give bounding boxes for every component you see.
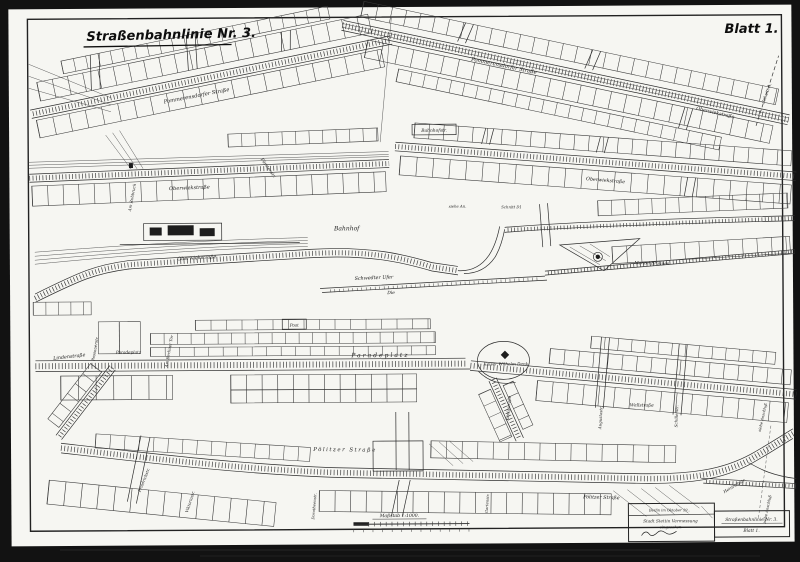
title-block-office-2: eingesehen	[660, 524, 683, 529]
square-label: Paradeplatz	[350, 352, 409, 359]
scale-label: Maßstab 1:1000.	[379, 513, 420, 519]
square-label: Paradeplatz	[115, 350, 142, 355]
street-label: Bahnhofstr.	[420, 129, 447, 134]
title-block-ref-sheet: Blatt 1.	[742, 529, 759, 534]
scanned-sheet: Pommerensdorfer Straße Pommerensdorfer S…	[8, 0, 800, 546]
map-canvas: Pommerensdorfer Straße Pommerensdorfer S…	[0, 0, 800, 562]
street-label: Wallstraße	[630, 403, 654, 408]
photo-texture-line	[200, 555, 760, 557]
paper	[8, 5, 794, 547]
title-block-ref-title: Straßenbahnlinie Nr. 3.	[725, 518, 777, 523]
monument-label: Manzel Brunnen	[633, 260, 670, 266]
section-label: Schnitt D1	[501, 204, 522, 209]
street-label: Pölitzer Straße	[312, 447, 377, 454]
note-label: siehe An.	[449, 204, 467, 209]
title-block-date: Berlin im Oktober 19..	[648, 508, 690, 512]
station-label: Bahnhof	[333, 225, 361, 232]
street-label: Pölitzer Straße	[582, 494, 620, 501]
photo-texture-line	[60, 549, 660, 551]
title-block-office: Stadt Stettin Vermessung	[643, 518, 698, 523]
street-label: Die	[386, 290, 395, 296]
building-label: Post	[289, 323, 299, 328]
street-label: Schillerstr.	[673, 405, 679, 428]
monument-label: Kaiser Wilhelm Denk.	[482, 361, 529, 366]
sheet-number: Blatt 1.	[724, 22, 778, 37]
